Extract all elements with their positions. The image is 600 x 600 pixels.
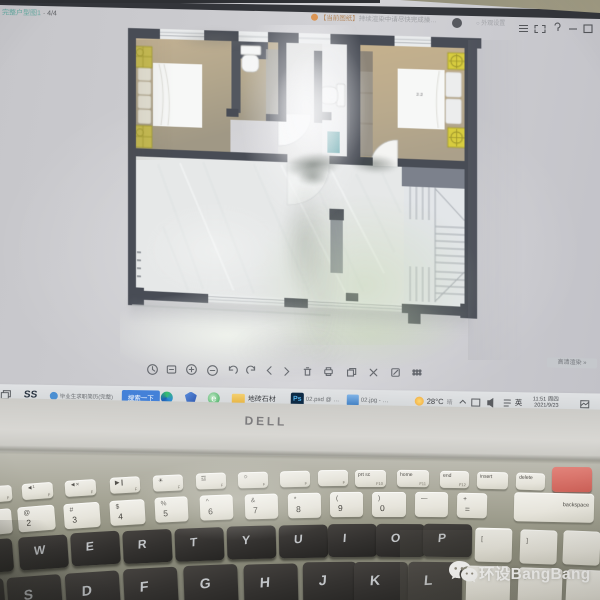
svg-text:2.2: 2.2 [416, 92, 423, 97]
